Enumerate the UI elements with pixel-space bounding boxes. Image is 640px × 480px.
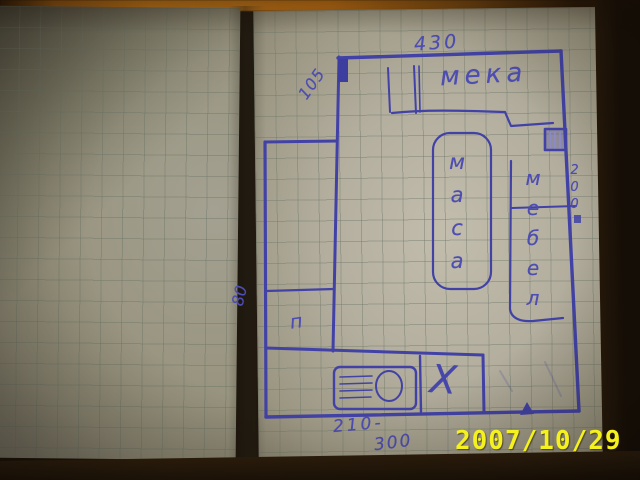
wall-bottom-section-top	[266, 348, 483, 355]
notebook-photo: 430 105 80 200 мека мебел маса п X 210- …	[0, 0, 640, 480]
dimension-top-width: 430	[413, 30, 460, 55]
label-table: маса	[445, 150, 469, 282]
wall-bottom-section-right	[483, 355, 484, 412]
door-marker-icon	[520, 402, 534, 415]
dark-frame-right	[595, 0, 640, 480]
sofa-divider-line	[388, 68, 390, 112]
stove-outline	[334, 367, 416, 409]
dimension-right-side: 200	[567, 163, 582, 214]
partition-bottom-section	[420, 356, 421, 412]
stove-burner-circle	[376, 371, 402, 401]
wall-pier-mark	[338, 59, 348, 82]
partition-leftwing	[266, 289, 334, 291]
x-mark: X	[428, 357, 458, 404]
wall-right	[561, 51, 579, 411]
wall-left	[265, 142, 266, 417]
small-ink-mark	[574, 215, 581, 223]
faint-scribble	[500, 362, 561, 396]
sofa-divider-line	[414, 66, 416, 113]
stove-grill-lines	[340, 376, 372, 398]
label-sofa-right: мебел	[521, 166, 545, 316]
wall-leftwing-top	[265, 141, 337, 142]
label-sofa-top: мека	[439, 58, 528, 93]
wall-interior-vertical	[333, 57, 339, 351]
sofa-divider-line	[419, 66, 420, 112]
camera-date-stamp: 2007/10/29	[455, 426, 622, 456]
